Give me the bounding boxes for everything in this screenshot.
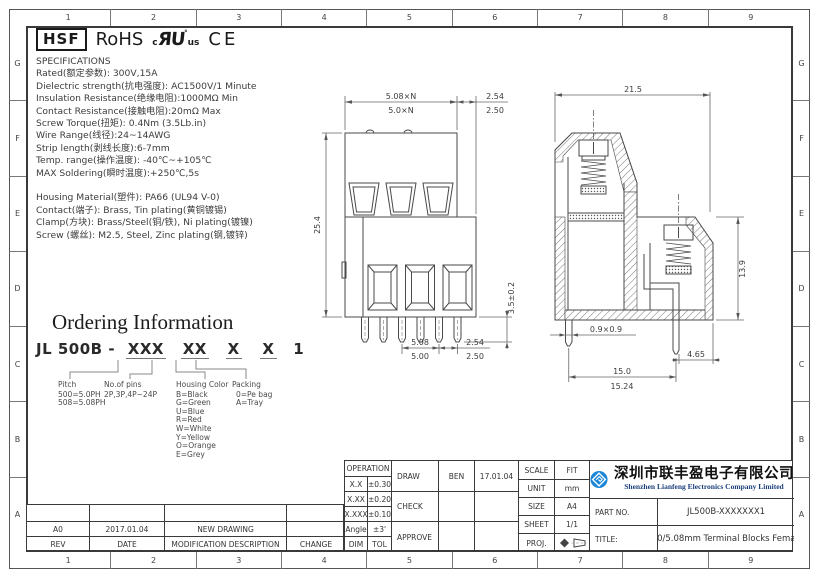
grid-col-label: 2: [110, 552, 195, 569]
grid-row-label: D: [793, 251, 810, 326]
grid-col-label: 4: [281, 9, 366, 26]
revision-desc: NEW DRAWING: [164, 521, 286, 536]
company-block: 深圳市联丰盈电子有限公司 Shenzhen Lianfeng Electroni…: [589, 461, 794, 498]
scale-label: SCALE: [518, 461, 554, 479]
company-logo-icon: [590, 463, 608, 496]
spec-line: Wire Range(线径):24~14AWG: [36, 130, 336, 142]
drawing-sheet: 1 2 3 4 5 6 7 8 9 1 2 3 4 5 6 7 8 9 G F …: [0, 0, 819, 578]
legend-pins: No.of pins 2P,3P,4P~24P: [104, 381, 157, 399]
legend-pitch: Pitch 500=5.0PH 508=5.08PH: [58, 381, 105, 408]
spec-line: Screw Torque(扭矩): 0.4Nm (3.5Lb.in): [36, 118, 336, 130]
front-view-drawing: 5.08×N 5.0×N 2.54 2.50 25.4 3.5±0.2 5.08…: [312, 82, 542, 394]
material-line: Housing Material(塑件): PA66 (UL94 V-0): [36, 192, 336, 205]
grid-row-label: A: [793, 477, 810, 552]
company-name-cn: 深圳市联丰盈电子有限公司: [614, 467, 794, 483]
tol-label: X.XX: [345, 491, 367, 506]
projection-symbol-icon: [554, 533, 589, 552]
tol-value: ±0.30: [367, 476, 391, 491]
size-label: SIZE: [518, 497, 554, 515]
legend-packing: Packing 0=Pe bag A=Tray: [232, 381, 272, 408]
sheet-value: 1/1: [554, 515, 589, 533]
grid-col-label: 7: [537, 552, 622, 569]
spec-line: Temp. range(操作温度): -40℃~+105℃: [36, 155, 336, 167]
grid-ref-right: G F E D C B A: [793, 26, 810, 552]
svg-text:13.9: 13.9: [738, 260, 747, 278]
company-name-en: Shenzhen Lianfeng Electronics Company Li…: [624, 483, 783, 491]
rohs-logo: RoHS: [96, 29, 144, 50]
svg-text:2.50: 2.50: [466, 352, 484, 361]
scale-value: FIT: [554, 461, 589, 479]
company-names: 深圳市联丰盈电子有限公司 Shenzhen Lianfeng Electroni…: [614, 467, 794, 491]
grid-row-label: A: [9, 477, 26, 552]
grid-row-label: D: [9, 251, 26, 326]
svg-text:5.08: 5.08: [411, 338, 429, 347]
grid-col-label: 2: [110, 9, 195, 26]
svg-text:0.9×0.9: 0.9×0.9: [590, 325, 622, 334]
size-value: A4: [554, 497, 589, 515]
side-view-drawing: 21.5 13.9 0.9×0.9 4.65 15.0 15.24: [548, 82, 793, 402]
operation-header: OPERATION: [345, 461, 391, 476]
check-name: [438, 491, 474, 521]
grid-row-label: B: [793, 401, 810, 476]
part-no-label: PART NO.: [589, 498, 657, 525]
grid-row-label: F: [793, 100, 810, 175]
unit-label: UNIT: [518, 479, 554, 497]
legend-housing-color: Housing Color B=Black G=Green U=Blue R=R…: [176, 381, 228, 459]
draw-name: BEN: [438, 461, 474, 491]
svg-text:21.5: 21.5: [624, 85, 642, 94]
terminal-body-front: [342, 130, 476, 342]
proj-label: PROJ.: [518, 533, 554, 552]
tol-label: Angle: [345, 521, 367, 536]
tol-label: DIM: [345, 536, 367, 552]
spec-line: Contact Resistance(接触电阻):20mΩ Max: [36, 106, 336, 118]
ordering-information-title: Ordering Information: [52, 310, 233, 335]
svg-text:15.24: 15.24: [611, 382, 634, 391]
grid-col-label: 8: [622, 9, 707, 26]
part-no-value: JL500B-XXXXXXX1: [657, 498, 794, 525]
svg-text:2.54: 2.54: [466, 338, 484, 347]
spec-line: Insulation Resistance(绝缘电阻):1000MΩ Min: [36, 93, 336, 105]
title-label: TITLE:: [589, 525, 657, 552]
ce-mark: CE: [208, 29, 238, 50]
grid-row-label: E: [793, 176, 810, 251]
revision-header-change: CHANGE: [286, 536, 345, 551]
front-dimension-labels: 5.08×N 5.0×N 2.54 2.50 25.4 3.5±0.2 5.08…: [313, 92, 516, 361]
svg-text:3.5±0.2: 3.5±0.2: [507, 282, 516, 314]
grid-row-label: G: [9, 26, 26, 100]
grid-col-label: 6: [452, 9, 537, 26]
grid-col-label: 3: [196, 9, 281, 26]
side-dimension-labels: 21.5 13.9 0.9×0.9 4.65 15.0 15.24: [590, 85, 747, 391]
part-seg-suffix: 1: [293, 340, 304, 358]
svg-text:2.50: 2.50: [486, 106, 504, 115]
grid-row-label: F: [9, 100, 26, 175]
title-block: OPERATION X.X ±0.30 X.XX ±0.20 X.XXX ±0.…: [344, 460, 793, 551]
grid-col-label: 7: [537, 9, 622, 26]
title-value: 5.0/5.08mm Terminal Blocks Female: [657, 525, 794, 552]
ul-recognized-icon: c ЯU ° us: [152, 29, 199, 50]
pin-centerlines: [365, 320, 458, 340]
grid-row-label: G: [793, 26, 810, 100]
svg-text:25.4: 25.4: [313, 216, 322, 234]
grid-row-label: B: [9, 401, 26, 476]
part-seg-packing: X: [260, 340, 276, 359]
spec-line: Strip length(剥线长度):6-7mm: [36, 143, 336, 155]
grid-col-label: 9: [708, 9, 793, 26]
front-dimension-arrows: [324, 100, 508, 349]
check-date: [474, 491, 518, 521]
front-dimension-lines: [322, 96, 512, 354]
part-seg-pins: XX: [181, 340, 209, 359]
grid-col-label: 3: [196, 552, 281, 569]
revision-header-rev: REV: [27, 536, 89, 551]
tol-label: X.X: [345, 476, 367, 491]
approve-date: [474, 521, 518, 552]
revision-table: A0 2017.01.04 NEW DRAWING REV DATE MODIF…: [26, 504, 344, 551]
approve-name: [438, 521, 474, 552]
revision-change: [286, 521, 345, 536]
spec-line: Rated(额定参数): 300V,15A: [36, 68, 336, 80]
spec-line: MAX Soldering(瞬时温度):+250℃,5s: [36, 168, 336, 180]
grid-row-label: C: [9, 326, 26, 401]
grid-col-label: 4: [281, 552, 366, 569]
part-seg-pitch: XXX: [126, 340, 166, 359]
grid-col-label: 1: [26, 9, 110, 26]
revision-rev: A0: [27, 521, 89, 536]
section-hatching: [555, 133, 713, 320]
material-line: Screw (螺丝): M2.5, Steel, Zinc plating(钢,…: [36, 230, 336, 243]
grid-col-label: 6: [452, 552, 537, 569]
material-line: Contact(端子): Brass, Tin plating(黄铜镀锡): [36, 205, 336, 218]
tol-value: TOL: [367, 536, 391, 552]
grid-col-label: 8: [622, 552, 707, 569]
spec-line: Dielectric strength(抗电强度): AC1500V/1 Min…: [36, 81, 336, 93]
specifications-title: SPECIFICATIONS: [36, 56, 336, 68]
tol-label: X.XXX: [345, 506, 367, 521]
part-seg-color: X: [226, 340, 242, 359]
material-line: Clamp(方块): Brass/Steel(铜/铁), Ni plating(…: [36, 217, 336, 230]
svg-text:4.65: 4.65: [687, 350, 705, 359]
draw-label: DRAW: [391, 461, 438, 491]
grid-ref-top: 1 2 3 4 5 6 7 8 9: [26, 9, 793, 26]
ordering-part-number: JL 500B - XXX XX X X 1: [36, 340, 304, 359]
svg-text:15.0: 15.0: [613, 367, 631, 376]
grid-row-label: E: [9, 176, 26, 251]
grid-col-label: 9: [708, 552, 793, 569]
approve-label: APPROVE: [391, 521, 438, 552]
revision-date: 2017.01.04: [89, 521, 164, 536]
part-prefix: JL 500B -: [36, 340, 115, 358]
tol-value: ±0.20: [367, 491, 391, 506]
grid-col-label: 5: [366, 9, 451, 26]
certification-marks: HSF RoHS c ЯU ° us CE: [36, 28, 238, 51]
unit-value: mm: [554, 479, 589, 497]
svg-text:5.08×N: 5.08×N: [386, 92, 417, 101]
grid-ref-bottom: 1 2 3 4 5 6 7 8 9: [26, 552, 793, 569]
hsf-logo: HSF: [36, 28, 87, 51]
svg-text:5.0×N: 5.0×N: [388, 106, 413, 115]
revision-header-desc: MODIFICATION DESCRIPTION: [164, 536, 286, 551]
svg-text:2.54: 2.54: [486, 92, 504, 101]
tol-value: ±3': [367, 521, 391, 536]
specifications-block: SPECIFICATIONS Rated(额定参数): 300V,15A Die…: [36, 56, 336, 180]
draw-date: 17.01.04: [474, 461, 518, 491]
grid-row-label: C: [793, 326, 810, 401]
revision-header-date: DATE: [89, 536, 164, 551]
grid-ref-left: G F E D C B A: [9, 26, 26, 552]
materials-block: Housing Material(塑件): PA66 (UL94 V-0) Co…: [36, 192, 336, 242]
svg-text:5.00: 5.00: [411, 352, 429, 361]
tol-value: ±0.10: [367, 506, 391, 521]
check-label: CHECK: [391, 491, 438, 521]
grid-col-label: 5: [366, 552, 451, 569]
sheet-label: SHEET: [518, 515, 554, 533]
grid-col-label: 1: [26, 552, 110, 569]
